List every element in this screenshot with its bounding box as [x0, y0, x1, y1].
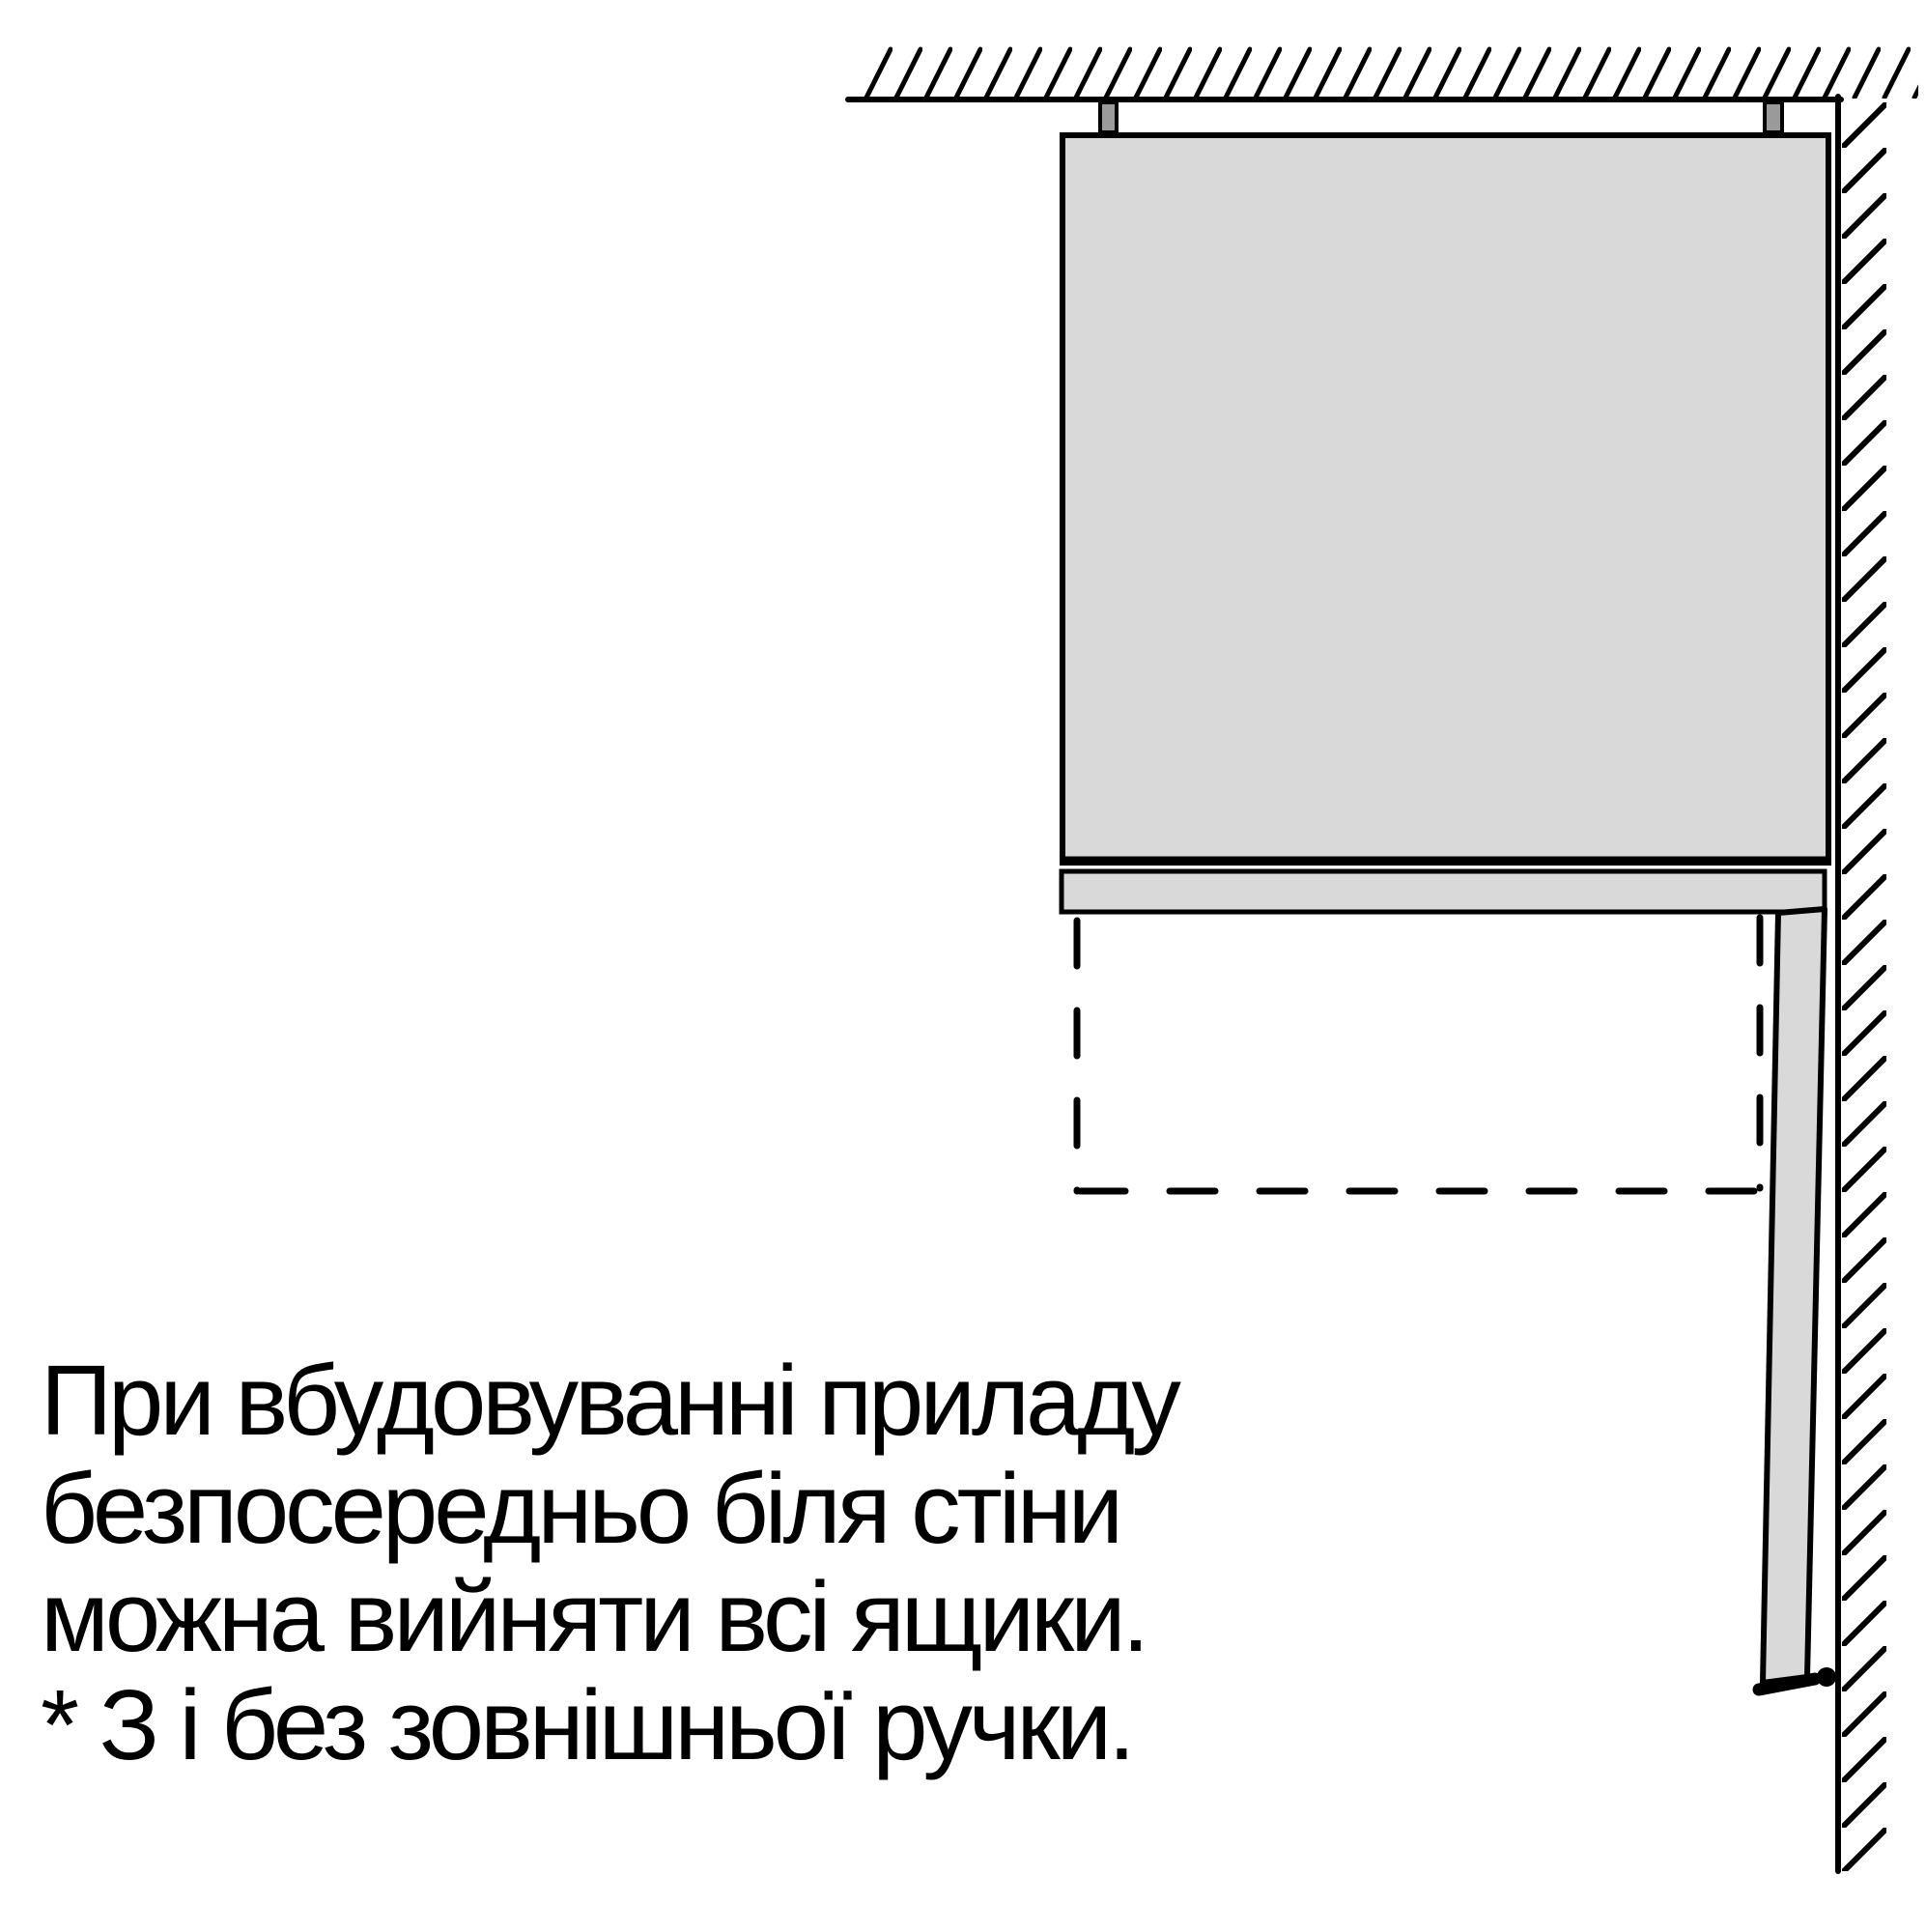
caption-line-4: * З і без зовнішньої ручки. [41, 1671, 1177, 1779]
installation-diagram-page: При вбудовуванні приладу безпосередньо б… [0, 0, 1926, 1932]
mounting-bracket-left [1100, 102, 1117, 132]
top-wall-hatching [863, 46, 1918, 99]
caption-line-1: При вбудовуванні приладу [41, 1347, 1177, 1455]
caption: При вбудовуванні приладу безпосередньо б… [41, 1347, 1177, 1779]
right-wall-hatching [1842, 102, 1886, 1871]
open-door-panel [1763, 909, 1825, 1683]
plinth-bar [1062, 871, 1825, 912]
caption-line-2: безпосередньо біля стіни [41, 1455, 1177, 1563]
mounting-bracket-right [1765, 102, 1782, 132]
door-handle-dot [1817, 1667, 1836, 1687]
appliance-cabinet [1062, 135, 1828, 863]
caption-line-3: можна вийняти всі ящики. [41, 1563, 1177, 1671]
drawer-extension-dashed-outline [1077, 918, 1760, 1191]
